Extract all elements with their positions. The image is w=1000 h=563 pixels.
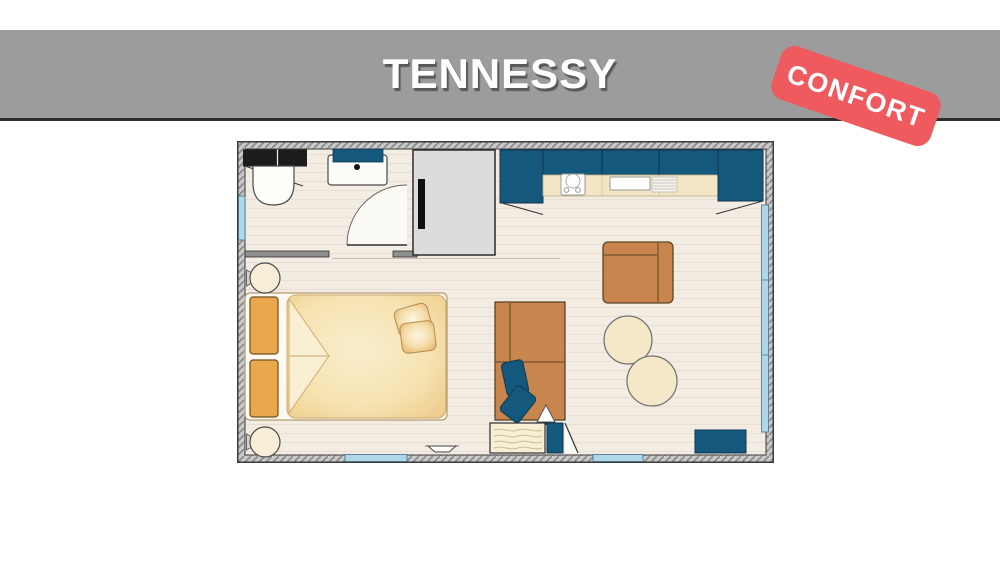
window	[345, 455, 407, 462]
bathroom-cabinet	[243, 150, 307, 167]
wardrobe-handle	[418, 179, 425, 229]
floor-plan	[237, 141, 774, 463]
window	[593, 455, 643, 462]
kitchen-corner-cabinet-right	[718, 150, 763, 201]
kitchen-corner-cabinet-left	[500, 150, 543, 203]
armchair	[603, 242, 673, 303]
pillow	[399, 320, 436, 354]
washbasin-shelf	[333, 149, 383, 162]
hob-burner-small	[576, 188, 581, 193]
hob-burner-small	[564, 188, 569, 193]
reading-lamp	[250, 263, 280, 293]
reading-lamp	[250, 427, 280, 457]
headboard-cushion	[250, 297, 278, 354]
washbasin-tap	[354, 164, 360, 170]
storage-bench	[695, 430, 746, 453]
toilet	[253, 166, 294, 205]
round-table	[627, 356, 677, 406]
page: TENNESSY CONFORT	[0, 0, 1000, 563]
headboard-cushion	[250, 360, 278, 417]
wardrobe	[413, 150, 495, 255]
window	[239, 196, 246, 240]
entrance-door-frame	[547, 423, 563, 453]
kitchen-cabinet-row	[543, 150, 718, 175]
model-title: TENNESSY	[383, 50, 617, 98]
partition-wall	[245, 251, 329, 257]
bay-window	[762, 205, 769, 432]
kitchen-sink	[610, 177, 650, 190]
drainer	[652, 177, 677, 192]
